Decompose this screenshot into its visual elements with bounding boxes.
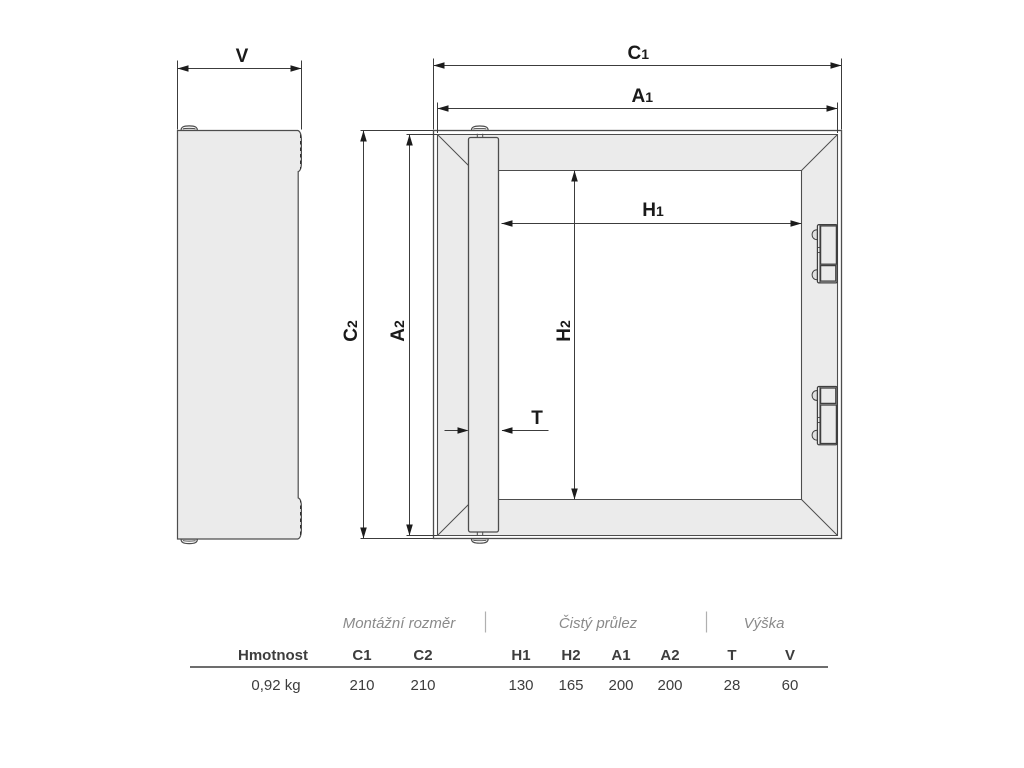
svg-text:210: 210 <box>349 677 374 694</box>
svg-text:C2: C2 <box>341 320 362 342</box>
svg-text:Čistý průlez: Čistý průlez <box>559 615 638 632</box>
svg-text:28: 28 <box>724 677 741 694</box>
svg-text:Montážní rozměr: Montážní rozměr <box>343 615 457 632</box>
svg-text:T: T <box>531 408 543 429</box>
svg-text:200: 200 <box>657 677 682 694</box>
svg-text:H1: H1 <box>511 647 530 664</box>
svg-text:0,92 kg: 0,92 kg <box>251 677 300 694</box>
svg-text:A1: A1 <box>632 86 654 107</box>
svg-text:H2: H2 <box>561 647 580 664</box>
svg-text:A2: A2 <box>388 320 409 342</box>
svg-text:60: 60 <box>782 677 799 694</box>
svg-text:Výška: Výška <box>744 615 785 632</box>
svg-text:Hmotnost: Hmotnost <box>238 647 308 664</box>
svg-text:A1: A1 <box>611 647 630 664</box>
svg-text:A2: A2 <box>660 647 679 664</box>
svg-text:T: T <box>727 647 736 664</box>
svg-text:H2: H2 <box>554 320 575 342</box>
svg-text:H1: H1 <box>642 200 664 221</box>
svg-text:C1: C1 <box>628 43 650 64</box>
svg-text:C1: C1 <box>352 647 371 664</box>
svg-text:165: 165 <box>558 677 583 694</box>
svg-text:200: 200 <box>608 677 633 694</box>
svg-text:C2: C2 <box>413 647 432 664</box>
svg-text:130: 130 <box>508 677 533 694</box>
svg-text:V: V <box>785 647 795 664</box>
svg-text:210: 210 <box>410 677 435 694</box>
svg-text:V: V <box>236 46 249 67</box>
